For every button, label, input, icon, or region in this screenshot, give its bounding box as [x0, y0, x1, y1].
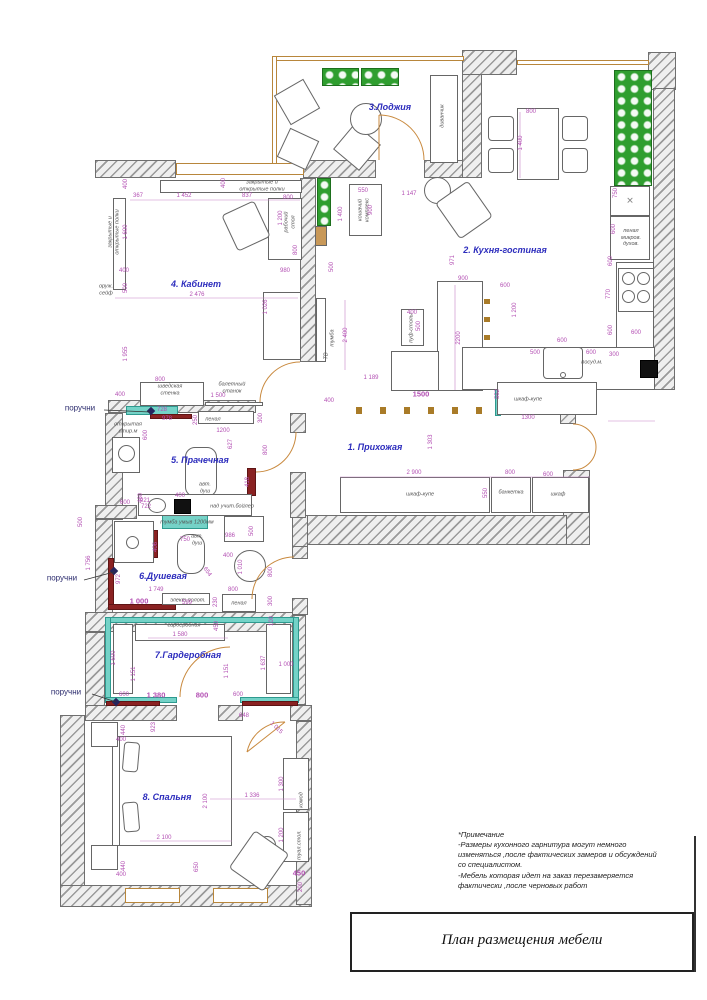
furniture-label: авт. душ — [191, 533, 203, 546]
dimension-label: 600 — [631, 330, 641, 336]
dimension-label: 1 300 — [279, 776, 285, 791]
dimension-label: 1 151 — [224, 663, 230, 678]
furniture-label: авт. душ — [199, 481, 211, 494]
drawing-title: План размещения мебели — [352, 932, 692, 949]
dimension-label: 600 — [608, 325, 614, 335]
dimension-label: 2 100 — [156, 835, 171, 841]
dimension-label: 1 637 — [261, 655, 267, 670]
room-label: 6.Душевая — [139, 571, 187, 581]
dimension-label: 500 — [530, 350, 540, 356]
dimension-label: 648 — [239, 713, 249, 719]
furniture-label: комод — [299, 792, 306, 808]
note-line: -Размеры кухонного гарнитура могут немно… — [458, 840, 678, 850]
dimension-label: 800 — [526, 109, 536, 115]
dimension-label: 1300 — [521, 415, 534, 421]
dimension-label: 400 — [123, 179, 129, 189]
dimension-label: 406 — [153, 542, 159, 552]
dimension-label: 837 — [242, 193, 252, 199]
dimension-label: 1 200 — [512, 302, 518, 317]
dimension-label: 600 — [233, 692, 243, 698]
dimension-label: 100 — [269, 616, 275, 626]
dimension-label: 500 — [329, 262, 335, 272]
dimension-label: 1 400 — [518, 135, 524, 150]
dimension-label: 1 336 — [244, 793, 259, 799]
dimension-label: 600 — [119, 692, 129, 698]
furniture-label: открытая стир.м — [114, 421, 142, 434]
furniture-label: пенал — [231, 601, 246, 608]
furniture-label: пуф-столы — [409, 313, 416, 343]
dimension-label: 400 — [223, 553, 233, 559]
dimension-label: 1 580 — [172, 632, 187, 638]
dimension-label: 1 756 — [86, 555, 92, 570]
dimension-label: 500 — [249, 526, 255, 536]
dimension-label: 800 — [293, 245, 299, 255]
dimension-label: 1 380 — [147, 691, 166, 700]
dimension-label: 367 — [133, 193, 143, 199]
dimension-label: 450 — [214, 621, 220, 631]
dimension-label: 1 600 — [111, 650, 117, 665]
dimension-label: 800 — [283, 195, 293, 201]
furniture-label: над учит.бойлер — [210, 504, 254, 511]
dimension-label: 1500 — [413, 390, 430, 399]
dimension-label: 400 — [115, 392, 125, 398]
furniture-label: оруж. сейф — [99, 283, 113, 296]
dimension-label: 1 026 — [263, 299, 269, 314]
handrail-label: поручни — [51, 688, 81, 697]
dimension-label: 770 — [606, 289, 612, 299]
furniture-label: тумба умыв 1200мм — [160, 520, 213, 527]
dimension-label: 800 — [196, 691, 209, 700]
dimension-label: 2 900 — [406, 470, 421, 476]
dimension-label: 600 — [120, 500, 130, 506]
dimension-label: 800 — [263, 445, 269, 455]
furniture-label: диванчик — [440, 104, 447, 127]
furniture-label: шкаф-купе — [406, 492, 434, 499]
dimension-label: 300 — [268, 596, 274, 606]
dimension-label: 600 — [500, 283, 510, 289]
note-line: со специалистом. — [458, 860, 678, 870]
dimension-label: 200 — [298, 882, 304, 892]
dimension-label: 2 476 — [189, 292, 204, 298]
dimension-label: 923 — [151, 722, 157, 732]
dimension-label: 1 147 — [401, 191, 416, 197]
title-block: План размещения мебели — [350, 912, 694, 972]
dimension-label: 450 — [293, 869, 306, 878]
dimension-label: 600 — [557, 338, 567, 344]
dimension-label: 1 000 — [278, 662, 293, 668]
dimension-label: 800 — [268, 567, 274, 577]
dimension-label: 1 151 — [131, 666, 137, 681]
dimension-label: 500 — [416, 321, 422, 331]
furniture-label: гардеробная — [167, 623, 200, 630]
dimension-label: 400 — [175, 493, 185, 499]
dimension-label: 400 — [407, 310, 417, 316]
dimension-label: 1 955 — [123, 346, 129, 361]
room-label: 5. Прачечная — [171, 455, 229, 465]
dimension-label: 550 — [358, 188, 368, 194]
notes-block: *Примечание -Размеры кухонного гарнитура… — [458, 830, 678, 891]
dimension-label: 300 — [258, 413, 264, 423]
note-line: *Примечание — [458, 830, 678, 840]
furniture-label: шведская стенка — [158, 383, 183, 396]
dimension-label: 972 — [116, 574, 122, 584]
dimension-label: 250 — [193, 415, 199, 425]
dimension-label: 800 — [228, 587, 238, 593]
note-line: фактически ,после черновых работ — [458, 881, 678, 891]
dimension-label: 552 — [495, 389, 501, 399]
dimension-label: 230 — [213, 597, 219, 607]
room-label: 1. Прихожая — [348, 442, 403, 452]
dimension-label: 1 600 — [123, 224, 129, 239]
dimension-label: 600 — [543, 472, 553, 478]
handrail-label: поручни — [47, 574, 77, 583]
dimension-label: 1 303 — [428, 434, 434, 449]
note-line: изменяться ,после фактических замеров и … — [458, 850, 678, 860]
room-label: 8. Спальня — [143, 792, 192, 802]
dimension-label: 600 — [608, 256, 614, 266]
furniture-label: шкаф — [551, 492, 566, 499]
dimension-label: 1 015 — [269, 721, 284, 736]
note-line: -Мебель которая идет на заказ перезамеря… — [458, 871, 678, 881]
dimension-label: 627 — [228, 439, 234, 449]
dimension-label: 440 — [121, 725, 127, 735]
dimension-label: 654 — [202, 566, 213, 578]
furniture-label: закрытые и открытые полки — [107, 209, 120, 254]
dimension-label: 599 — [182, 600, 192, 606]
dimension-label: 400 — [116, 737, 126, 743]
furniture-label: туал.стол. — [297, 830, 304, 860]
dimension-label: 1200 — [216, 428, 229, 434]
furniture-label: тумба — [330, 329, 337, 346]
furniture-label: закрытые и открытые полки — [239, 179, 284, 192]
dimension-label: 500 — [123, 283, 129, 293]
room-label: 7.Гардеробная — [155, 650, 221, 660]
furniture-label: посуд.м. — [581, 360, 602, 367]
dimension-label: 400 — [116, 872, 126, 878]
dimension-label: 1 200 — [278, 210, 284, 225]
dimension-label: 1 000 — [130, 597, 149, 606]
dimension-label: 2 100 — [203, 793, 209, 808]
floor-plan-page: ✕ — [0, 0, 707, 1000]
dimension-label: 400 — [324, 398, 334, 404]
dimension-label: 1 452 — [176, 193, 191, 199]
furniture-label: пенал микров. духов. — [621, 228, 641, 248]
dimension-label: 728 — [157, 407, 167, 413]
dimension-label: 600 — [611, 224, 617, 234]
dimension-label: 1 749 — [148, 587, 163, 593]
dimension-label: 400 — [119, 268, 129, 274]
dimension-label: 750 — [180, 537, 190, 543]
room-label: 2. Кухня-гостиная — [463, 245, 547, 255]
dimension-label: 750 — [613, 188, 619, 198]
dimension-label: 900 — [458, 276, 468, 282]
dimension-label: 550 — [483, 488, 489, 498]
dimension-label: 600 — [586, 350, 596, 356]
dimension-label: 1 500 — [210, 393, 225, 399]
dimension-label: 800 — [505, 470, 515, 476]
dimension-label: 978 — [162, 416, 172, 422]
furniture-label: шкаф-купе — [514, 397, 542, 404]
dimension-label: 440 — [121, 861, 127, 871]
dimension-label: 900 — [368, 205, 374, 215]
handrail-label: поручни — [65, 404, 95, 413]
dimension-label: 722 — [141, 504, 151, 510]
dimension-label: 400 — [221, 178, 227, 188]
dimension-label: 300 — [609, 352, 619, 358]
dimension-label: 2 400 — [343, 327, 349, 342]
dimension-label: 971 — [450, 255, 456, 265]
dimension-label: 980 — [280, 268, 290, 274]
furniture-label: банкетка — [498, 490, 523, 497]
dimension-label: 1 010 — [238, 559, 244, 574]
room-label: 4. Кабинет — [171, 279, 221, 289]
dimension-label: 418 — [245, 477, 251, 487]
room-label: 3.Лоджия — [369, 102, 411, 112]
dimension-label: 1 400 — [338, 206, 344, 221]
dimension-label: 500 — [78, 517, 84, 527]
furniture-label: ТВ — [324, 352, 331, 359]
dimension-label: 800 — [155, 377, 165, 383]
drawing-frame-line — [694, 836, 696, 972]
furniture-label: рабочий стол — [283, 212, 296, 233]
dimension-label: 650 — [194, 862, 200, 872]
dimension-label: 1 200 — [279, 827, 285, 842]
furniture-label: пенал — [205, 417, 220, 424]
dimension-label: 1 189 — [363, 375, 378, 381]
dimension-label: 600 — [143, 430, 149, 440]
dimension-label: 2200 — [456, 331, 462, 344]
dimension-label: 986 — [225, 533, 235, 539]
